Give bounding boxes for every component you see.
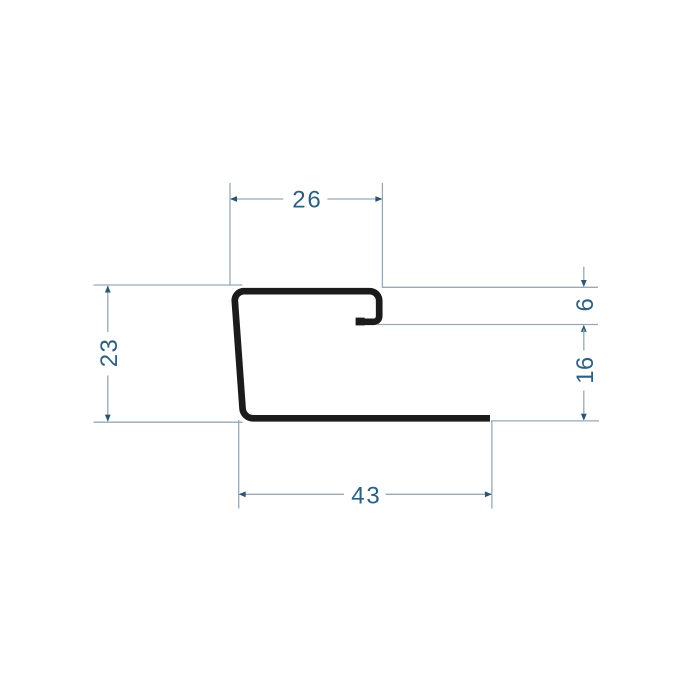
svg-text:23: 23	[96, 339, 123, 367]
svg-text:43: 43	[351, 482, 380, 509]
svg-text:26: 26	[292, 187, 321, 214]
svg-text:16: 16	[572, 357, 599, 384]
svg-text:6: 6	[572, 298, 599, 311]
